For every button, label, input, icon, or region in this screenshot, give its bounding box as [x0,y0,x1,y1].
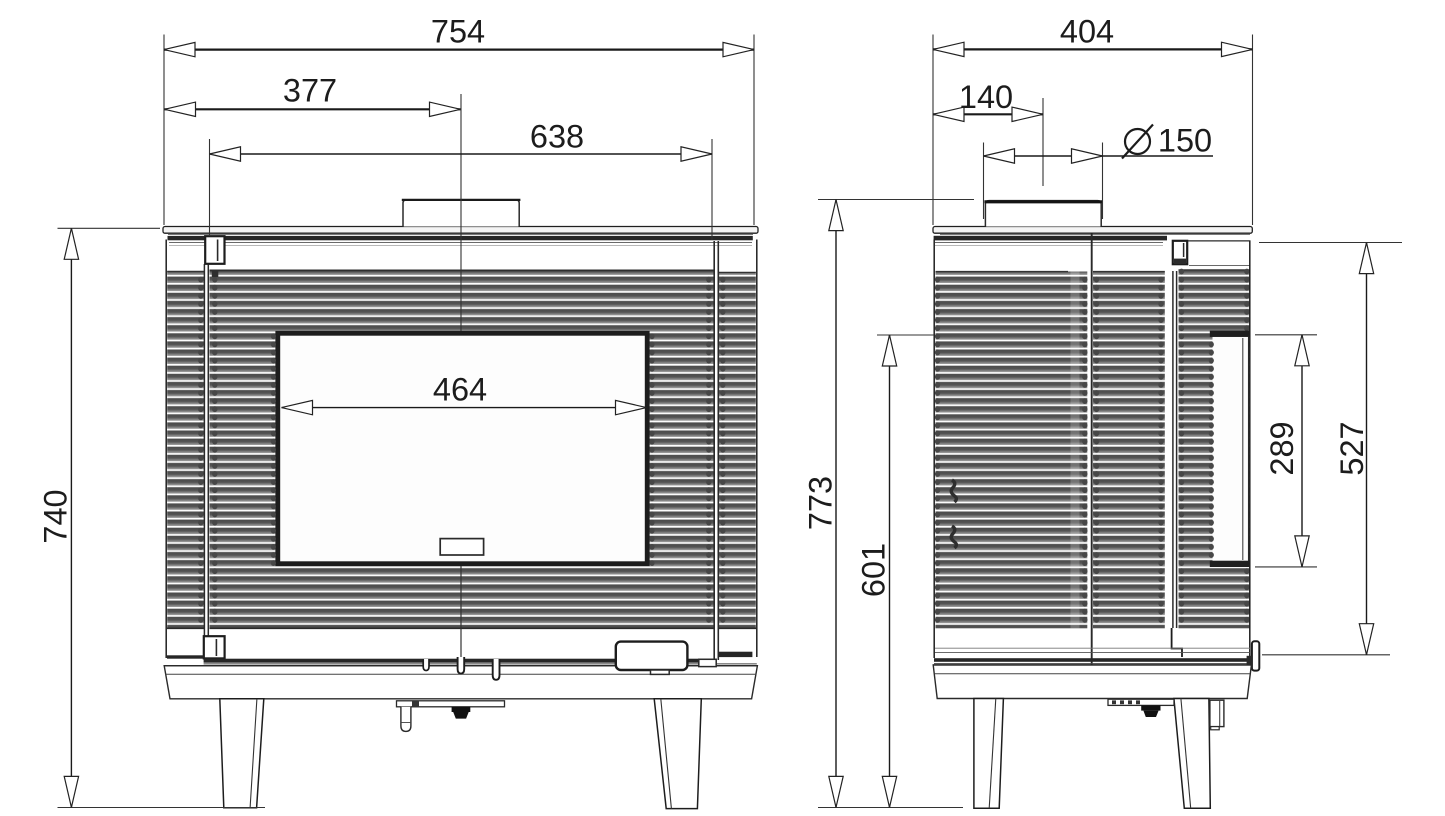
svg-text:754: 754 [431,13,485,49]
svg-text:289: 289 [1264,421,1300,475]
svg-text:527: 527 [1334,421,1370,475]
svg-text:150: 150 [1158,122,1212,158]
svg-text:773: 773 [802,476,838,530]
svg-text:404: 404 [1060,13,1114,49]
svg-text:377: 377 [283,72,337,108]
svg-text:464: 464 [433,371,487,407]
svg-text:601: 601 [855,543,891,597]
svg-text:140: 140 [959,79,1013,115]
svg-text:740: 740 [37,489,73,543]
svg-text:638: 638 [530,118,584,154]
